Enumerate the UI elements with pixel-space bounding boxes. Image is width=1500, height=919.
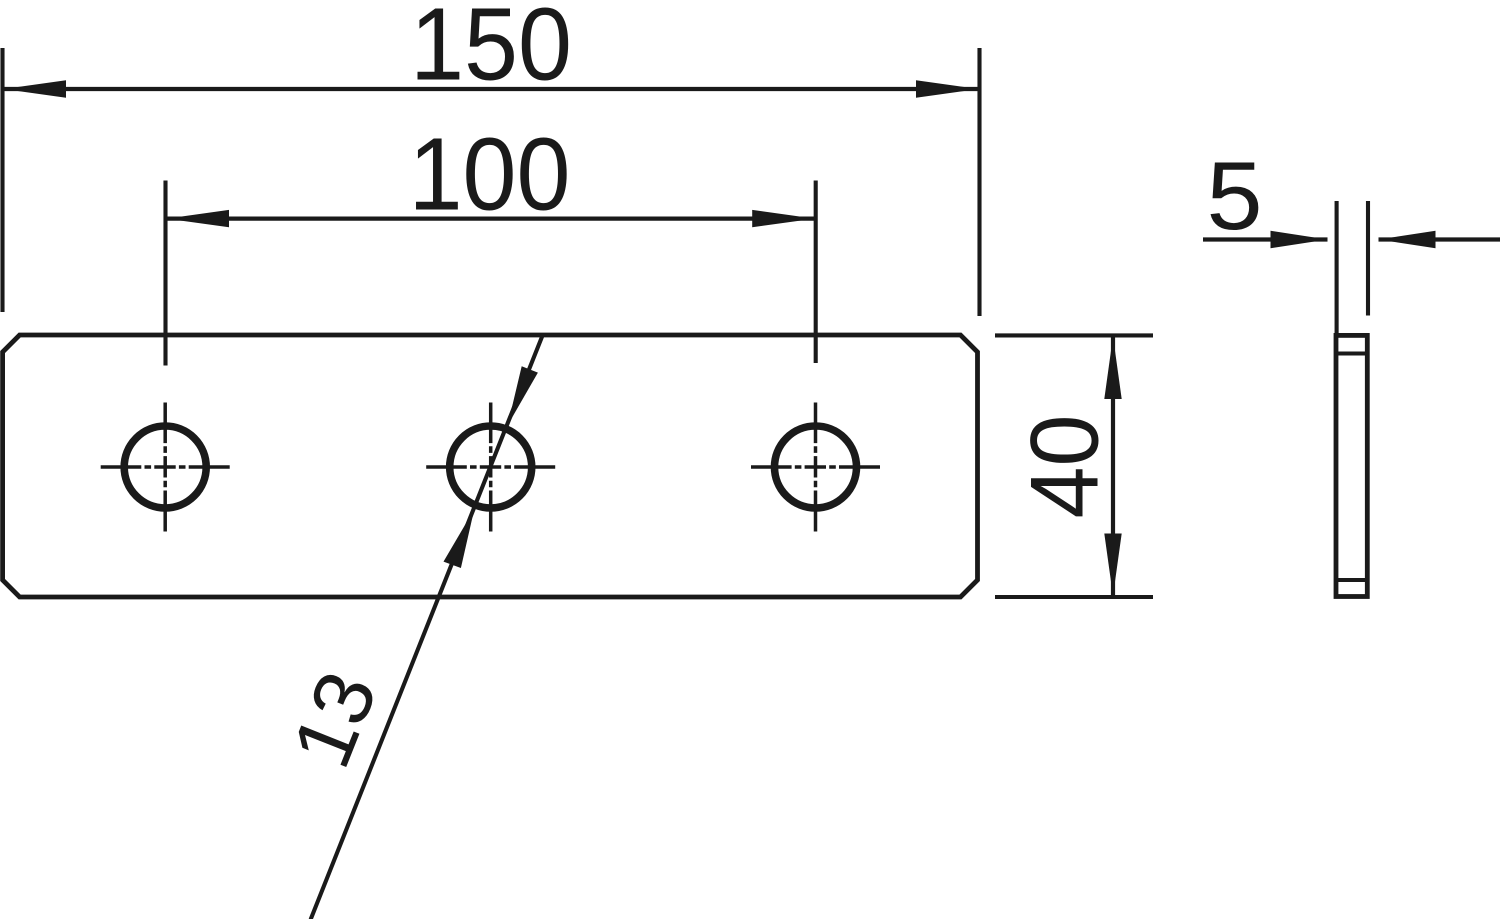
svg-text:100: 100 bbox=[409, 117, 571, 233]
svg-text:40: 40 bbox=[1011, 415, 1119, 519]
svg-text:5: 5 bbox=[1206, 141, 1262, 250]
svg-text:150: 150 bbox=[410, 0, 572, 102]
